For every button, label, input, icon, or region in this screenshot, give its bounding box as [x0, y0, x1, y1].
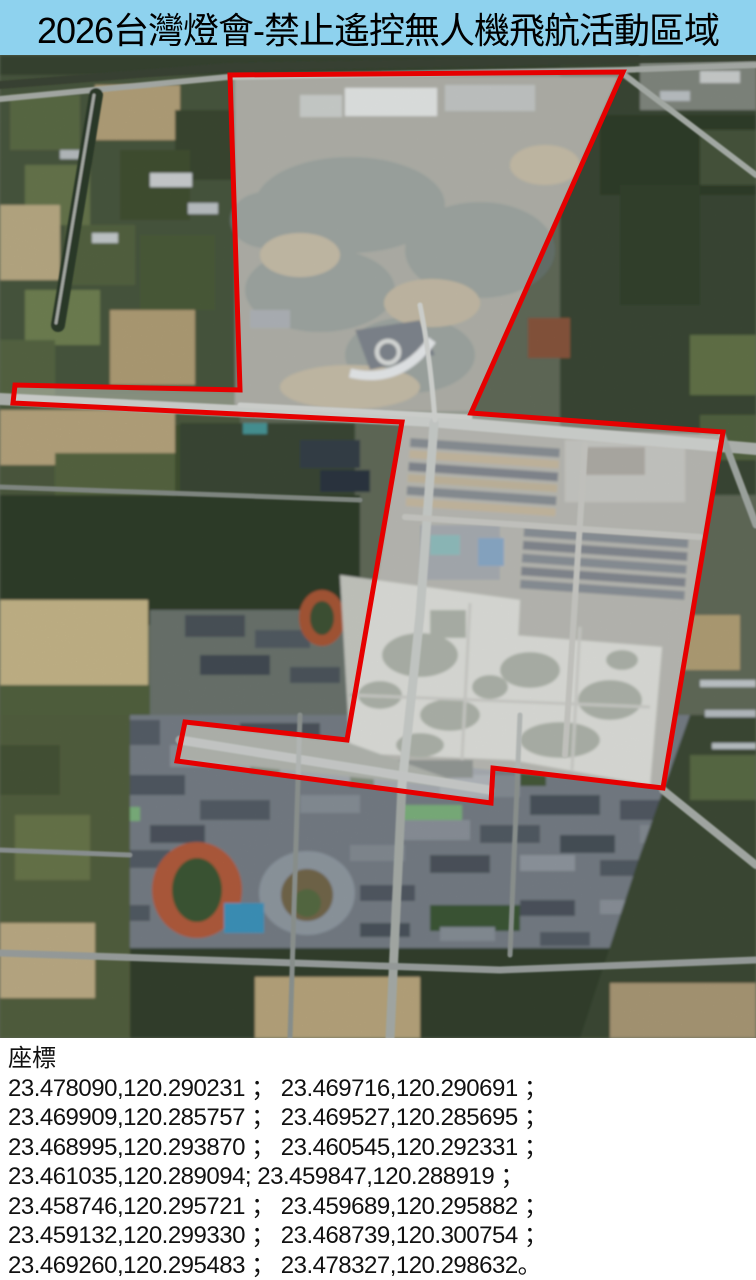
coordinate-line: 23.461035,120.289094; 23.459847,120.2889… [8, 1162, 750, 1192]
flyer-page: 2026台灣燈會-禁止遙控無人機飛航活動區域 [0, 0, 756, 1280]
coordinate-line: 23.458746,120.295721 ； 23.459689,120.295… [8, 1192, 750, 1222]
coordinate-line: 23.468995,120.293870 ； 23.460545,120.292… [8, 1133, 750, 1163]
coordinate-line: 23.469909,120.285757 ； 23.469527,120.285… [8, 1103, 750, 1133]
title-bar: 2026台灣燈會-禁止遙控無人機飛航活動區域 [0, 0, 756, 55]
page-title: 2026台灣燈會-禁止遙控無人機飛航活動區域 [37, 2, 719, 54]
coordinate-line: 23.469260,120.295483 ； 23.478327,120.298… [8, 1251, 750, 1280]
coordinate-line: 23.459132,120.299330 ； 23.468739,120.300… [8, 1221, 750, 1251]
coordinate-line: 23.478090,120.290231 ； 23.469716,120.290… [8, 1074, 750, 1104]
coordinates-panel: 座標 23.478090,120.290231 ； 23.469716,120.… [0, 1038, 756, 1280]
map-container [0, 55, 756, 1038]
satellite-map [0, 55, 756, 1038]
coordinates-label: 座標 [8, 1044, 750, 1074]
